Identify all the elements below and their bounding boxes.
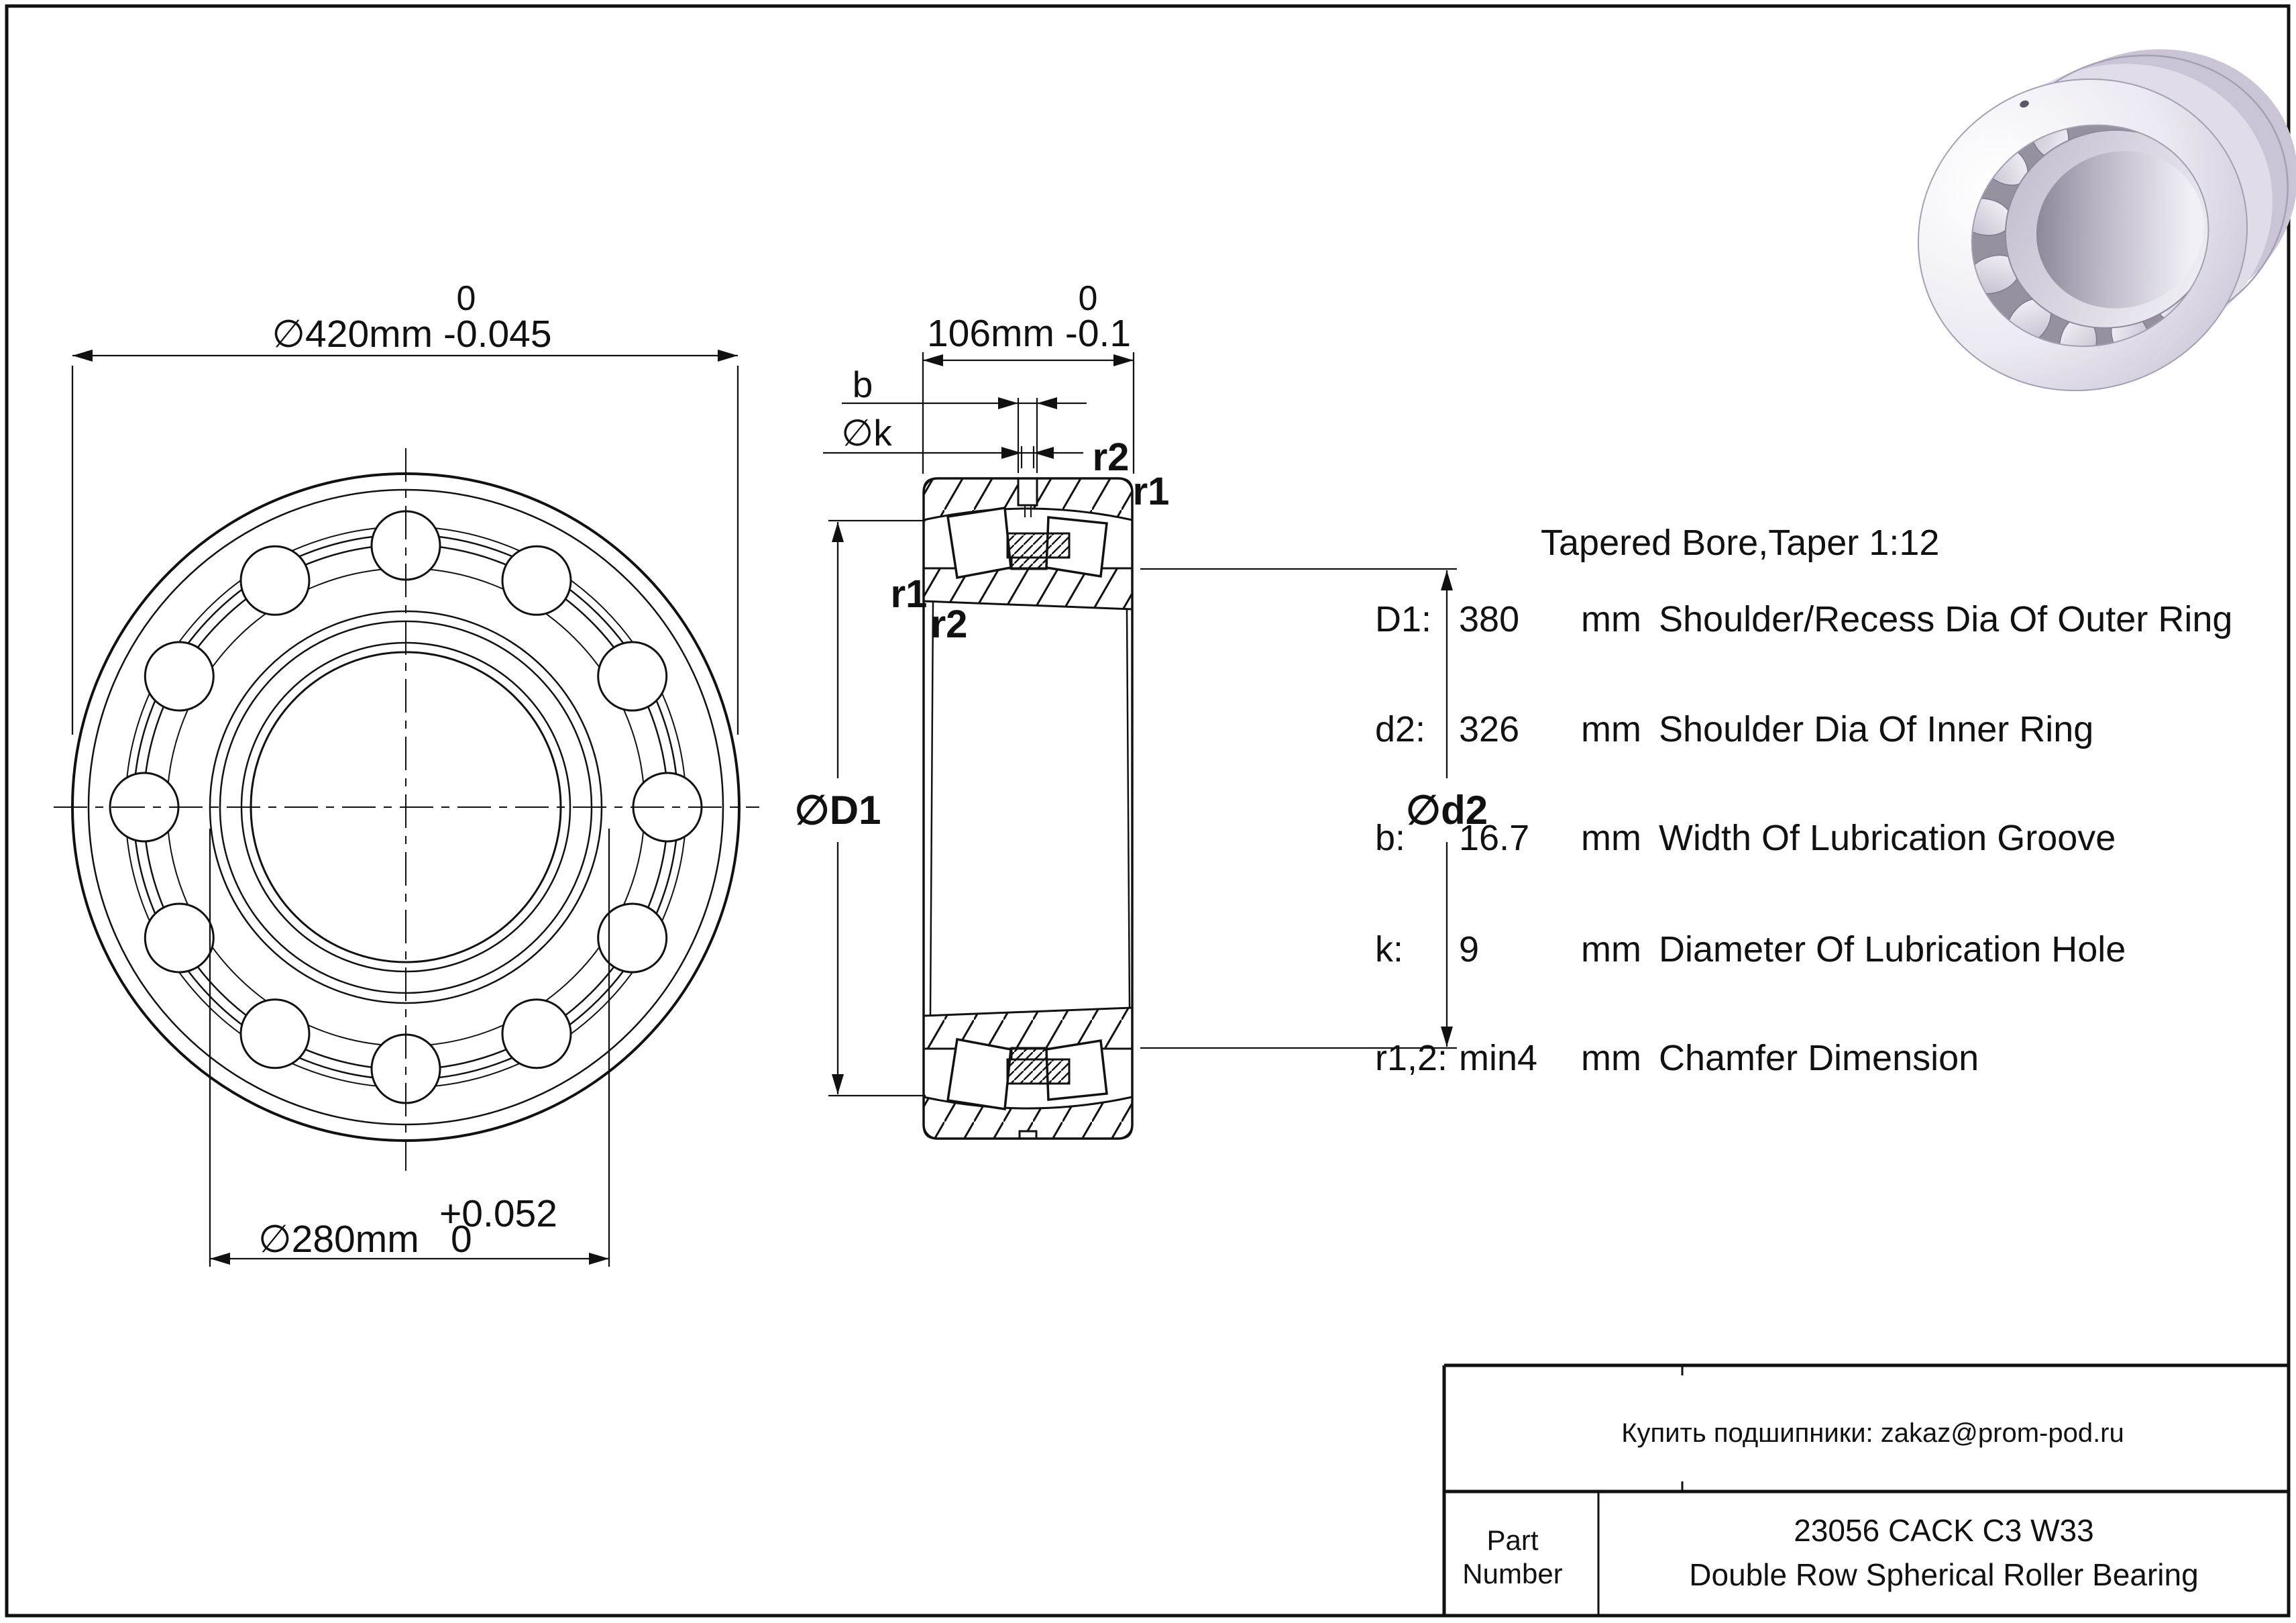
label-r2-top: r2 bbox=[1093, 435, 1130, 479]
arrowhead bbox=[718, 350, 738, 362]
spec-desc: Shoulder/Recess Dia Of Outer Ring bbox=[1659, 599, 2232, 639]
part-number-label-line2: Number bbox=[1462, 1558, 1562, 1589]
dim-bore-lower-tolerance: 0 bbox=[451, 1218, 472, 1261]
contact-text: Купить подшипники: zakaz@prom-pod.ru bbox=[1621, 1418, 2124, 1448]
cage-section bbox=[1007, 1059, 1069, 1084]
spec-label: d2: bbox=[1375, 709, 1425, 749]
spec-value: min4 bbox=[1459, 1038, 1537, 1078]
cage-section bbox=[1012, 1048, 1046, 1059]
dim-d2: ∅d2 bbox=[1140, 569, 1488, 1048]
roller bbox=[948, 508, 1011, 578]
dim-width-value: 106mm -0.1 bbox=[927, 312, 1131, 355]
bearing-3d-render bbox=[1873, 8, 2296, 436]
title-block: Купить подшипники: zakaz@prom-pod.ru Par… bbox=[1444, 1365, 2289, 1617]
dim-hole-diameter: ∅k bbox=[823, 412, 1083, 468]
spec-label: k: bbox=[1375, 929, 1403, 970]
cage-section bbox=[1007, 533, 1069, 558]
spec-row: D1: 380 mm Shoulder/Recess Dia Of Outer … bbox=[1375, 599, 2232, 639]
spec-row: b: 16.7 mm Width Of Lubrication Groove bbox=[1375, 818, 2116, 858]
part-number-label-line1: Part bbox=[1486, 1524, 1538, 1556]
spec-unit: mm bbox=[1581, 1038, 1641, 1078]
arrowhead bbox=[998, 397, 1018, 409]
spec-block: Tapered Bore,Taper 1:12 D1: 380 mm Shoul… bbox=[1375, 523, 2232, 1078]
label-r2-left: r2 bbox=[931, 603, 968, 646]
label-r1-left: r1 bbox=[891, 572, 928, 616]
spec-desc: Diameter Of Lubrication Hole bbox=[1659, 929, 2126, 970]
arrowhead bbox=[210, 1253, 230, 1265]
arrowhead bbox=[832, 522, 844, 542]
part-number-value: 23056 CACK C3 W33 bbox=[1794, 1513, 2093, 1548]
arrowhead bbox=[832, 1074, 844, 1094]
spec-label: D1: bbox=[1375, 599, 1431, 639]
cage-section bbox=[1012, 558, 1046, 569]
arrowhead bbox=[72, 350, 93, 362]
label-r1-top-right: r1 bbox=[1133, 470, 1170, 513]
spec-unit: mm bbox=[1581, 709, 1641, 749]
label-k: ∅k bbox=[841, 412, 892, 454]
drawing-sheet: 0 ∅420mm -0.045 +0.052 ∅280mm 0 bbox=[0, 0, 2296, 1623]
spec-row: d2: 326 mm Shoulder Dia Of Inner Ring bbox=[1375, 709, 2093, 749]
dim-bore-value: ∅280mm bbox=[258, 1218, 419, 1261]
spec-value: 326 bbox=[1459, 709, 1519, 749]
label-D1: ∅D1 bbox=[795, 788, 881, 833]
dim-outer-value: ∅420mm -0.045 bbox=[272, 313, 551, 356]
spec-desc: Width Of Lubrication Groove bbox=[1659, 818, 2116, 858]
spec-desc: Shoulder Dia Of Inner Ring bbox=[1659, 709, 2093, 749]
front-view bbox=[54, 448, 759, 1171]
spec-row: r1,2: min4 mm Chamfer Dimension bbox=[1375, 1038, 1979, 1078]
spec-label: r1,2: bbox=[1375, 1038, 1447, 1078]
spec-row: k: 9 mm Diameter Of Lubrication Hole bbox=[1375, 929, 2126, 970]
spec-unit: mm bbox=[1581, 929, 1641, 970]
spec-value: 16.7 bbox=[1459, 818, 1529, 858]
bearing-drawing: 0 ∅420mm -0.045 +0.052 ∅280mm 0 bbox=[0, 0, 2296, 1623]
arrowhead bbox=[1113, 354, 1134, 366]
section-view bbox=[924, 478, 1132, 1139]
spec-value: 9 bbox=[1459, 929, 1479, 970]
arrowhead bbox=[1441, 570, 1453, 590]
arrowhead bbox=[923, 354, 943, 366]
arrowhead bbox=[589, 1253, 609, 1265]
spec-value: 380 bbox=[1459, 599, 1519, 639]
spec-unit: mm bbox=[1581, 599, 1641, 639]
roller bbox=[948, 1039, 1011, 1109]
spec-title: Tapered Bore,Taper 1:12 bbox=[1541, 523, 1939, 563]
spec-label: b: bbox=[1375, 818, 1405, 858]
spec-unit: mm bbox=[1581, 818, 1641, 858]
label-b: b bbox=[853, 364, 873, 405]
arrowhead bbox=[1037, 397, 1057, 409]
spec-desc: Chamfer Dimension bbox=[1659, 1038, 1979, 1078]
part-description: Double Row Spherical Roller Bearing bbox=[1689, 1557, 2198, 1592]
